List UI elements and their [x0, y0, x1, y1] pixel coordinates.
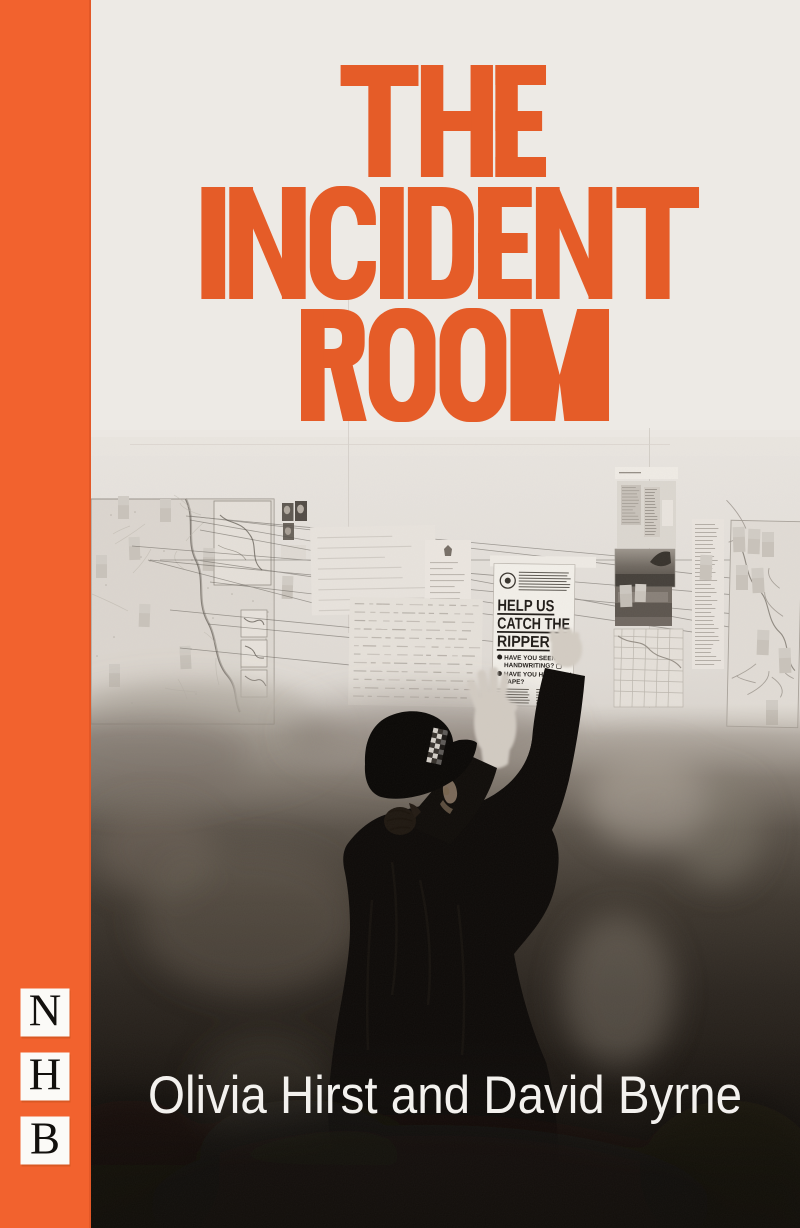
svg-text:B: B: [30, 1114, 60, 1164]
svg-text:H: H: [29, 1050, 62, 1100]
svg-text:N: N: [29, 986, 62, 1036]
svg-text:Olivia Hirst and David Byrne: Olivia Hirst and David Byrne: [148, 1066, 742, 1125]
